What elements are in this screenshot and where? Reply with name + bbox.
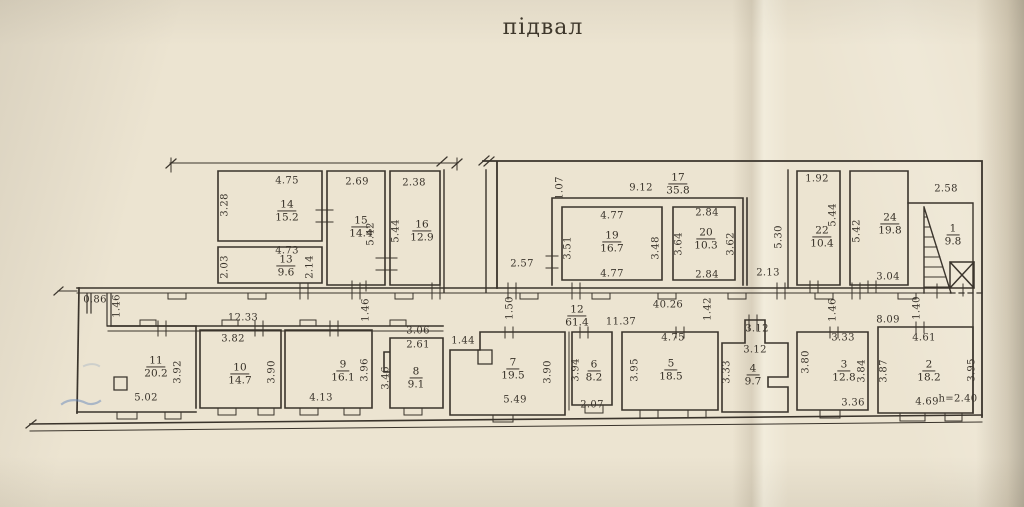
top-right-rooms — [479, 156, 982, 417]
shaft-crossed-box — [950, 262, 974, 296]
floorplan-walls — [0, 0, 1024, 507]
outer-bottom-wall — [26, 415, 982, 431]
corridor-walls — [54, 283, 950, 336]
top-left-rooms — [166, 157, 494, 292]
bottom-rooms — [77, 288, 973, 422]
pen-mark — [62, 364, 100, 404]
staircase — [924, 207, 951, 298]
scanned-floorplan-page: підвал — [0, 0, 1024, 507]
